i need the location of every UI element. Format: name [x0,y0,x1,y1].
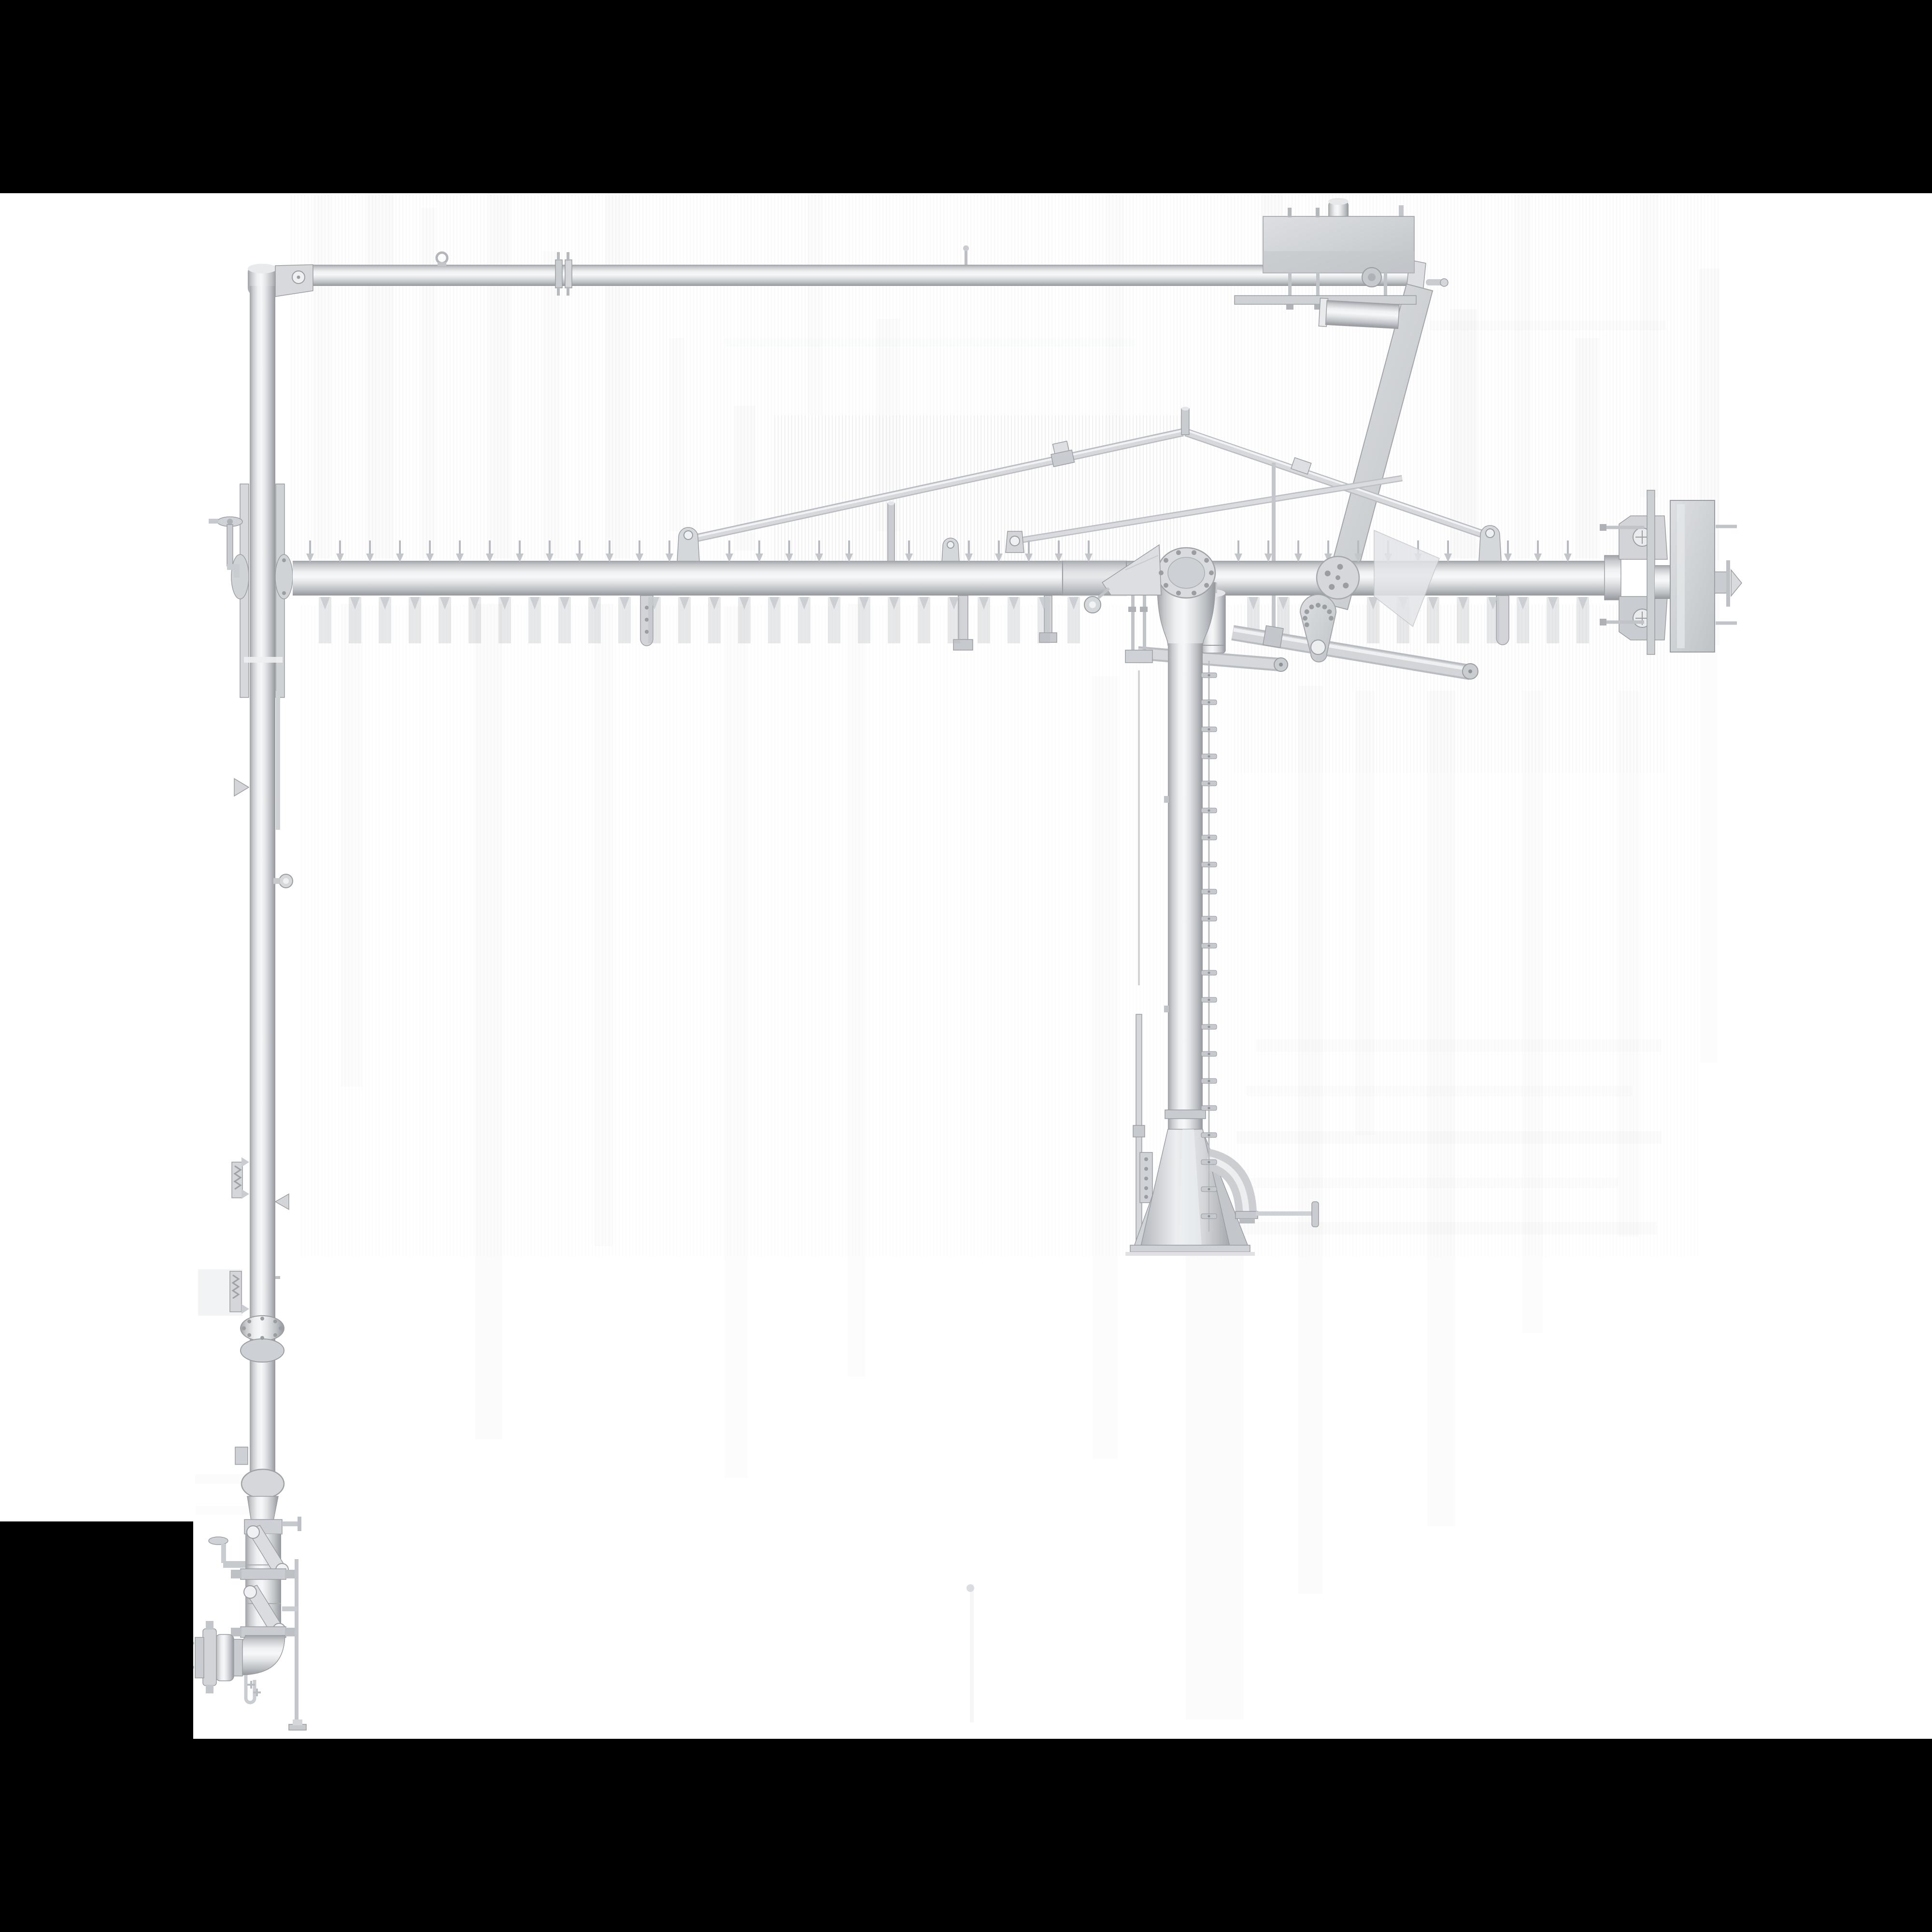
clamp-ring-upper [241,1569,286,1579]
clamp-nut [1140,607,1148,612]
ghost-band-horizontal [1430,321,1666,330]
lifting-eye-base [438,262,446,266]
riser-joint-collar [244,657,283,663]
ghost-band-vertical [313,193,331,558]
flange-bolt [279,1326,283,1330]
rod-clamp-tie [282,1606,298,1611]
spout-flange [1236,1211,1258,1219]
chain-pin [1207,971,1210,974]
pipe-collar-1 [555,260,562,288]
lug-hole [645,630,649,634]
link-hole [244,1586,256,1598]
bolt-nut [1600,619,1606,625]
ghost-band-horizontal [1236,1222,1657,1235]
chain-pin [1207,1107,1210,1109]
drop-rod [1272,463,1276,633]
ghost-band-vertical [848,604,865,1377]
end-strip-plate [1647,490,1655,654]
valve-spout [209,519,218,524]
clamp-lug [285,1628,296,1636]
flange-bolt [1329,616,1334,621]
chain-pin [1207,917,1210,920]
lug-eye-hole [1486,529,1494,538]
ghost-band-vertical [1427,691,1455,1526]
guide-block [1133,1125,1145,1137]
ghost-band-vertical [808,193,822,415]
flange-bolt [1209,570,1214,575]
riser-eye-base [273,878,280,884]
tube-clip [1164,796,1169,803]
chain-pin [1207,701,1210,703]
jib-pin-head [963,245,969,251]
flange-bolt [1192,550,1196,555]
inlet-end-ring [195,1637,204,1678]
chain-pin [1207,728,1210,730]
chain-pin [1207,1188,1210,1190]
chain-pin [1207,1080,1210,1082]
flange-bolt [1329,584,1335,590]
cap-center-hole [1279,663,1283,667]
king-post-cap [888,501,895,505]
flange-bolt [1309,605,1314,610]
link-hole [247,1526,259,1538]
cap-center-hole [1468,669,1472,673]
cone-base-line [1125,1252,1255,1256]
rotary-flange-inner [1168,557,1205,588]
ghost-band-vertical [606,193,630,558]
ubolt-stud [1316,208,1320,217]
tube-joint-clamp [1165,1110,1206,1119]
flange-bolt [282,591,286,595]
ghost-band-vertical [367,193,393,558]
hose-drop-clip [966,1584,974,1592]
index-hole [1144,1167,1148,1171]
inlet-neck-ring [233,1639,242,1676]
index-hole [1144,1177,1148,1180]
letterbox-bottom-bar [0,1739,1932,1932]
ubolt-nut [1286,304,1293,310]
riser-top-cap [248,264,277,273]
lug-eye-hole [947,541,954,548]
pivot-shaft-cap [1328,198,1349,205]
ghost-band-vertical [1640,193,1659,497]
disc-center [1335,575,1340,580]
ghost-band-vertical [594,604,613,1246]
riser-strip-bar [276,691,280,830]
handwheel-hub [227,519,233,525]
collar-stud [557,252,560,261]
cone-skirt [1130,1245,1250,1252]
flange-bolt [260,1336,264,1340]
pivot-pin-cap [1440,279,1448,286]
riser-eye-hole [283,878,289,884]
riser-clamp-tab [235,1447,248,1464]
trolley-plate-shadow [1263,251,1414,273]
ghost-band-vertical [1514,193,1531,558]
clamp-block [1125,650,1152,663]
tube-collar-clamp [1263,625,1283,647]
chain-pin [1207,863,1210,866]
clamp-lug [231,1628,241,1636]
spout-rod [1256,1211,1314,1216]
flange-bolt [242,1326,246,1330]
rod-end-disc [1312,1202,1319,1227]
flange-bolt [1204,558,1209,563]
collar-stud [567,252,569,261]
ghost-band-horizontal [1256,1039,1662,1052]
chain-pin [1207,782,1210,784]
flange-bolt [1164,558,1168,563]
t-pin-head [298,1517,301,1531]
spout-flange-2 [1239,1219,1255,1223]
flange-bolt [1337,564,1343,569]
ghost-band-vertical [1700,652,1718,1063]
flange-bolt [1316,603,1321,608]
ghost-band-vertical [724,607,748,1478]
plate-highlight [1677,504,1685,648]
end-coupler-sleeve [1605,555,1621,600]
king-post [888,503,895,562]
chain-pin [1207,944,1210,947]
ghost-band-horizontal [1236,1178,1618,1188]
clamp-rod [1131,596,1135,653]
apex-stub [1181,409,1189,435]
flange-bolt [1322,605,1327,610]
apex-stub-cap [1181,407,1189,411]
index-hole [1144,1195,1148,1199]
ghost-band-vertical [421,208,436,558]
clevis-pin-icon [297,276,300,279]
ghost-band-vertical [1355,691,1375,1135]
flange-bolt [1164,583,1168,588]
render-canvas [0,0,1932,1932]
end-mount-plate [1670,500,1715,652]
ghost-band-vertical [1522,691,1543,1333]
ghost-band-horizontal [1236,1131,1662,1144]
ubolt-stud [1288,208,1292,217]
ghost-band-vertical [970,1584,974,1722]
pull-eye-hole [1089,601,1096,608]
corner-black-block [0,1521,193,1932]
chain-pin [1207,1025,1210,1028]
ghost-band-vertical [1576,338,1599,558]
riser-base-flange [241,1469,284,1498]
pipe-collar-2 [565,260,572,288]
ghost-band-vertical [543,251,560,558]
clamp-nut [1128,607,1136,612]
chain-pin [1207,998,1210,1001]
chain-pin [1207,836,1210,838]
chain-pin [1207,809,1210,811]
lug-hole [645,606,649,610]
flange-bolt [1176,591,1181,596]
ghost-band-horizontal [724,338,1135,347]
flange-bolt [1327,610,1332,614]
flange-bolt [1343,582,1349,588]
ghost-band-horizontal [1246,1086,1633,1096]
flange-bolt [1305,610,1309,614]
flange-bolt [273,1320,277,1323]
ghost-band-vertical [1106,193,1123,526]
flange-bolt [1325,570,1331,576]
counterweight-box [1326,300,1400,328]
chain-pin [1207,1134,1210,1136]
flange-bolt [247,1320,251,1323]
chain-pin [1207,1052,1210,1055]
ghost-band-vertical [1093,676,1118,1459]
drain-valve-body [223,1561,245,1568]
ghost-band-vertical [669,338,684,531]
end-stub-pipe [1655,565,1671,599]
chain-pin [1207,890,1210,893]
letterbox-top-bar [0,0,1932,193]
chain-pin [1207,1161,1210,1163]
hanging-cable [1138,670,1140,985]
chain-pin [1207,755,1210,757]
flange-bolt [247,1333,251,1337]
end-cross-pin [1726,560,1730,607]
drain-valve-stem [221,1544,226,1563]
knuckle-hole [1010,536,1020,546]
riser-tick [275,1276,280,1279]
ghost-band-vertical [488,193,510,558]
tube-clip [1164,1006,1169,1012]
flange-bolt [282,558,286,562]
ghost-band-vertical [341,604,362,1087]
flange-bolt [1204,583,1209,588]
drop-tube [1168,643,1203,1131]
flange-lug [206,1621,213,1630]
valve-stem [227,525,233,566]
flange-bolt [1192,591,1196,596]
flange-bolt [260,1317,264,1321]
clamp-rod [1143,596,1146,653]
teardrop-hole [1311,640,1325,654]
pivot-boss-hub [1368,273,1376,281]
bolt-nut [1600,524,1606,531]
flange-bolt [1176,550,1181,555]
flange-bolt [1303,616,1307,621]
riser-breakout-flange-lower [241,1339,284,1362]
swivel-neck [247,1496,278,1520]
collar-stud [567,287,569,296]
chain-pin [1207,674,1210,676]
end-shaft-stub [1715,572,1728,593]
chain-pin [1207,1215,1210,1217]
index-hole [1144,1186,1148,1190]
lug-eye-hole [684,531,693,540]
index-hole [1144,1157,1148,1161]
flange-bolt [273,1333,277,1337]
flange-lug [206,1685,213,1693]
ghost-band-vertical [475,604,502,1439]
inlet-flange-disc [203,1629,216,1686]
drain-valve-handwheel [209,1537,228,1545]
clamp-lug [231,1570,241,1578]
support-rod [295,1559,298,1725]
flange-bolt [1159,570,1164,575]
rod-foot-boss [293,1719,302,1725]
ghost-band-vertical [1617,691,1639,1236]
ghost-band-vertical [1186,1256,1244,1719]
inlet-swivel-bulb [215,1634,234,1681]
top-jib-pipe [309,265,1416,286]
clamp-lug [285,1570,296,1578]
collar-body [1263,625,1283,647]
flange-bolt [1305,623,1309,627]
lug-hole [645,618,649,622]
collar-stud [557,287,560,296]
